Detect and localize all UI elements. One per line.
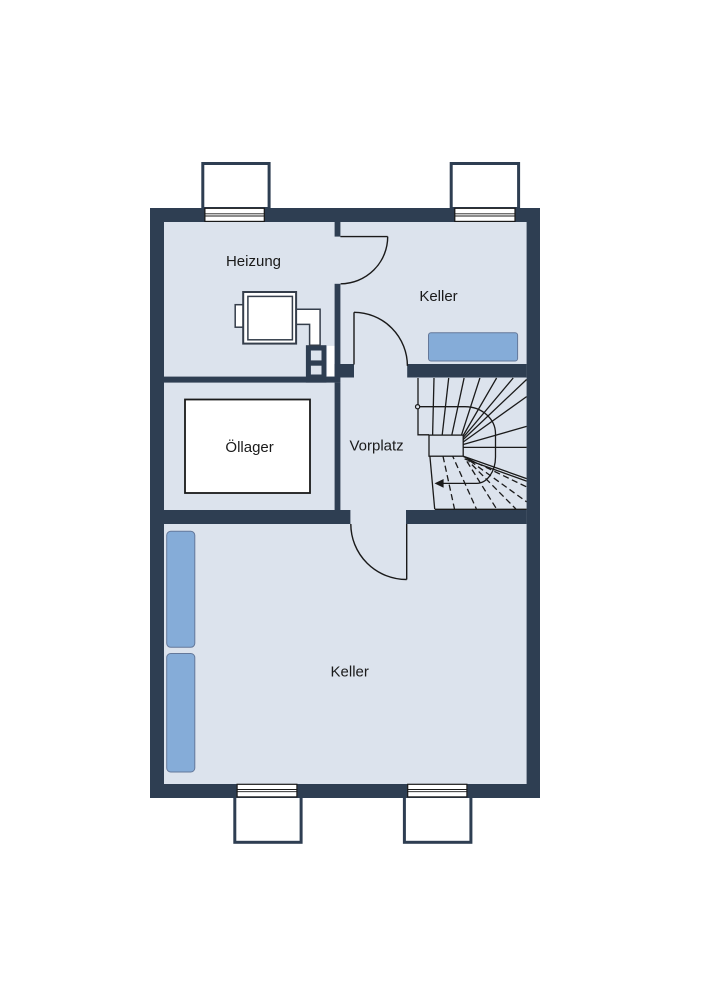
svg-text:Keller: Keller: [419, 288, 457, 305]
svg-text:Keller: Keller: [331, 664, 369, 681]
svg-text:Öllager: Öllager: [225, 438, 273, 456]
svg-text:Heizung: Heizung: [226, 253, 281, 270]
svg-text:Vorplatz: Vorplatz: [349, 437, 403, 454]
